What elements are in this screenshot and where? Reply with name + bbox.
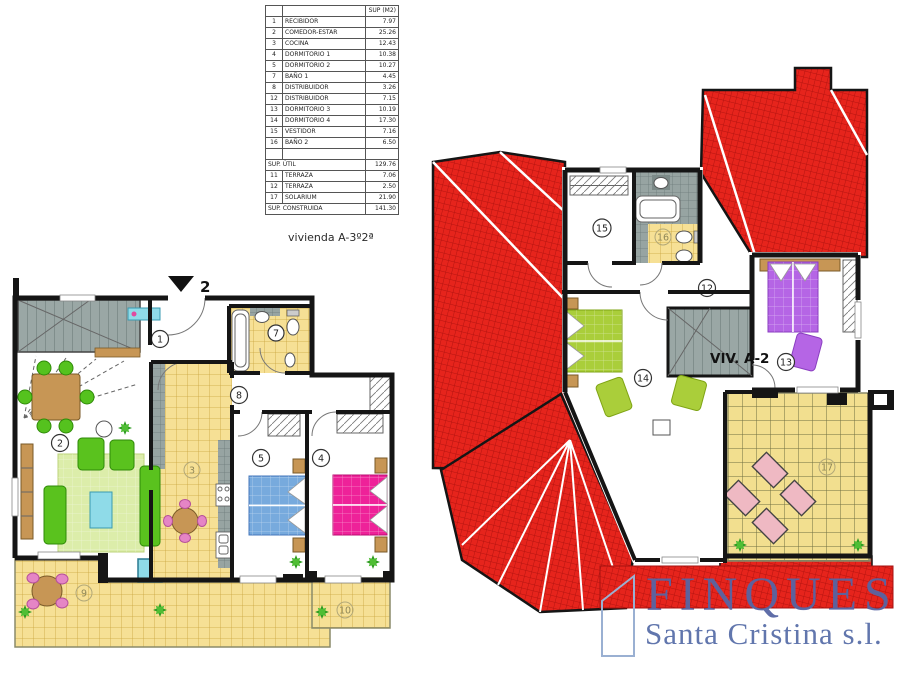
table-row: 16BAÑO 26.50 [266,138,399,149]
svg-text:14: 14 [637,374,649,385]
armchair [110,440,134,470]
bidet [285,353,295,367]
entrance-marker: 2 [168,276,210,296]
toilet [287,319,299,335]
logo-subname: Santa Cristina s.l. [645,616,883,652]
area-table-header: SUP (M2) [366,6,399,17]
table-row: 3COCINA12.43 [266,39,399,50]
table-row: 5DORMITORIO 210.27 [266,61,399,72]
table-row: 2COMEDOR-ESTAR25.26 [266,28,399,39]
svg-text:5: 5 [258,454,264,465]
plant-icon [365,554,382,571]
kitchen-table [172,508,198,534]
table-row: 11TERRAZA7.06 [266,171,399,182]
svg-text:13: 13 [780,358,792,369]
side-table [96,421,112,437]
svg-text:3: 3 [189,466,195,477]
table-row: 1RECIBIDOR7.97 [266,17,399,28]
svg-text:10: 10 [339,606,351,617]
table-row: 17SOLARIUM21.90 [266,193,399,204]
sink [654,178,668,189]
logo-name: FINQUES [646,567,898,622]
bidet [676,250,692,262]
plant-icon [288,554,305,571]
living-room: 2 [18,361,160,552]
room-marker-bath-1: 7 [268,325,284,341]
table-row: SUP. CONSTRUIDA141.30 [266,204,399,215]
wardrobe [268,414,300,436]
svg-text:1: 1 [157,335,163,346]
table-row: 7BAÑO 14.45 [266,72,399,83]
table-row: 8DISTRIBUIDOR3.26 [266,83,399,94]
armchair [78,438,104,470]
coffee-table [90,492,112,528]
table-row: 12TERRAZA2.50 [266,182,399,193]
wardrobe [337,414,383,433]
floor-plan-lower: 9 10 [12,276,392,647]
room-marker-living: 2 [52,435,69,452]
kitchen-counter [151,363,165,469]
plan-caption: vivienda A-3º2ª [288,231,374,244]
svg-text:15: 15 [596,224,608,235]
table-row: 15VESTIDOR7.16 [266,127,399,138]
svg-text:17: 17 [821,463,833,474]
svg-text:8: 8 [236,391,242,402]
side-table [653,420,670,435]
svg-text:7: 7 [273,329,279,340]
room-marker-hall: 1 [152,331,169,348]
room-marker-bedroom-3: 13 [778,354,795,371]
terrace-2: 10 [312,578,390,628]
room-marker-vestidor: 15 [593,219,611,237]
entrance-arrow-icon [168,276,194,292]
solarium: 17 [724,388,894,561]
svg-text:4: 4 [318,454,324,465]
room-marker-dist-1: 8 [231,387,248,404]
table-row: SUP. ÚTIL129.76 [266,160,399,171]
bedroom-2: 5 [249,414,305,570]
dining-table [32,374,80,420]
area-table-body: 1RECIBIDOR7.972COMEDOR-ESTAR25.263COCINA… [266,17,399,215]
kitchen: 3 [151,363,232,578]
bathroom-1: 7 [229,307,310,373]
room-marker-bedroom-4: 14 [635,370,652,387]
svg-text:2: 2 [200,278,210,296]
svg-text:9: 9 [81,589,87,600]
table-row: 12DISTRIBUIDOR7.15 [266,94,399,105]
sofa [44,486,66,544]
plant-icon [117,420,134,437]
table-row [266,149,399,160]
toilet [676,231,692,243]
wardrobe [370,376,390,412]
floor-plan-upper: 15 16 12 VIV. A [433,68,894,612]
room-marker-bedroom-1: 4 [313,450,330,467]
sink [255,312,269,323]
unit-label: VIV. A-2 [710,351,769,367]
table-row: 14DORMITORIO 417.30 [266,116,399,127]
floor-plan-sheet: 9 10 [0,0,900,675]
table-row: 4DORMITORIO 110.38 [266,50,399,61]
area-table: SUP (M2) 1RECIBIDOR7.972COMEDOR-ESTAR25.… [265,5,399,215]
table-row: 13DORMITORIO 310.19 [266,105,399,116]
room-marker-bedroom-2: 5 [253,450,270,467]
bedroom-1: 4 [313,376,391,570]
svg-text:16: 16 [657,233,669,244]
bathroom-2: 16 [634,172,699,263]
svg-text:2: 2 [57,439,63,450]
